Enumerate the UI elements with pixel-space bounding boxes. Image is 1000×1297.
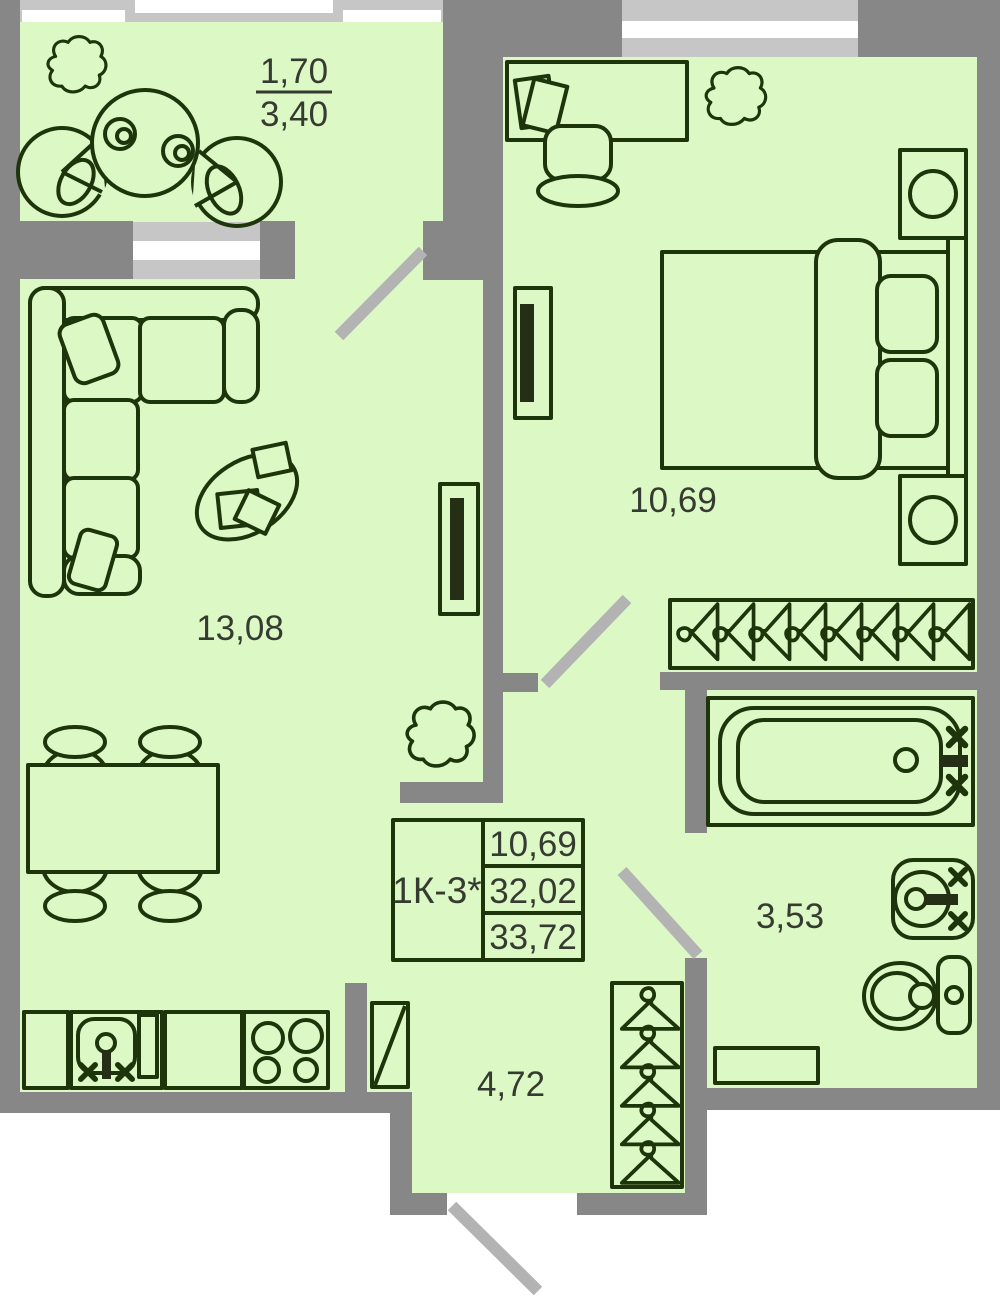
tv-bedroom <box>515 288 551 418</box>
kitchen-counter <box>165 1012 242 1088</box>
pillow <box>877 276 937 352</box>
unit-type-label: 1К-3* <box>392 870 481 911</box>
living-area-label: 13,08 <box>196 609 284 648</box>
info-row-3: 33,72 <box>489 918 577 957</box>
bedroom-area-label: 10,69 <box>629 481 717 520</box>
info-row-2: 32,02 <box>489 872 577 911</box>
nightstand-top <box>900 150 966 238</box>
kitchen-sink <box>71 1012 162 1088</box>
entrance-door-swing <box>452 1206 538 1291</box>
nightstand-bottom <box>900 476 966 564</box>
bedroom-window <box>622 0 858 57</box>
balcony-window-top <box>20 0 443 22</box>
bath-shelf <box>715 1048 818 1083</box>
floor-plan: 1,70 3,40 <box>0 0 1000 1297</box>
desk-chair <box>538 126 618 206</box>
hall-area-label: 4,72 <box>477 1065 545 1104</box>
balcony-table <box>92 90 198 196</box>
bedroom-wardrobe <box>670 600 973 668</box>
info-row-1: 10,69 <box>489 825 577 864</box>
info-table: 1К-3* 10,69 32,02 33,72 <box>392 820 583 960</box>
balcony-area-total: 3,40 <box>260 95 328 134</box>
living-window <box>133 222 260 279</box>
headboard <box>948 238 966 480</box>
toilet <box>864 957 970 1033</box>
stove <box>244 1012 328 1088</box>
bathroom-area-label: 3,53 <box>756 897 824 936</box>
bathroom-sink <box>893 860 973 938</box>
kitchen-counter <box>24 1012 68 1088</box>
kitchen-door-leaf <box>372 1003 408 1087</box>
dining-table <box>28 765 218 872</box>
hall-wardrobe <box>612 983 682 1187</box>
bed <box>662 238 966 480</box>
balcony-area-coef: 1,70 <box>260 52 328 91</box>
kitchen <box>24 1012 328 1088</box>
pillow <box>877 360 937 436</box>
bathtub <box>708 698 973 825</box>
tv-living <box>440 484 478 614</box>
